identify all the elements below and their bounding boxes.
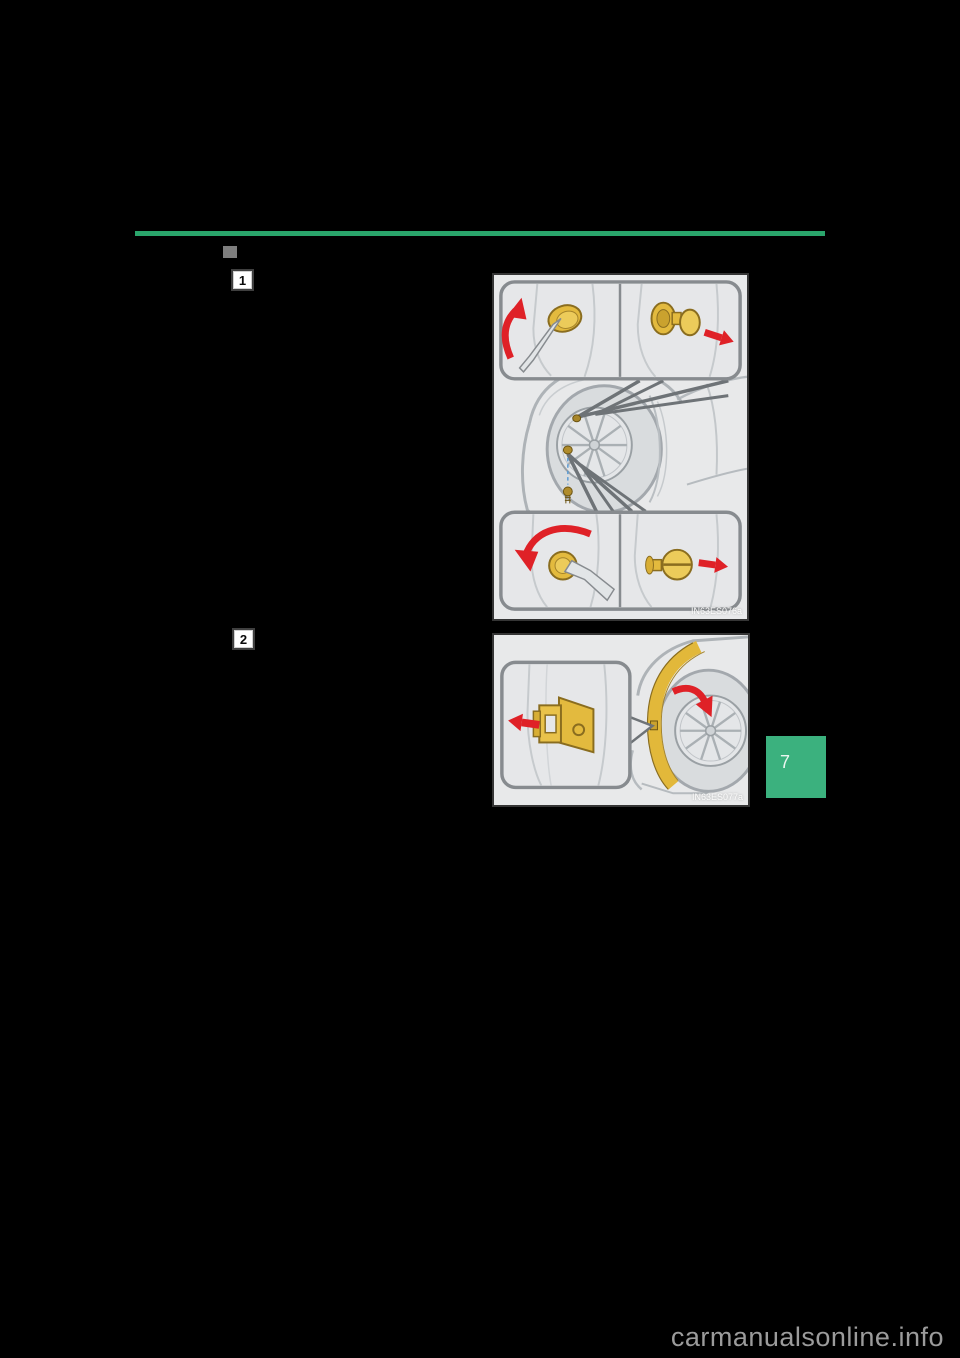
inset-liner-clip — [502, 662, 630, 787]
section-divider-rule — [135, 231, 825, 236]
manual-page: 1 2 — [0, 0, 960, 1358]
clip-removal-illustration — [494, 275, 747, 619]
section-square-icon — [223, 246, 237, 258]
figure-liner-removal: IN63ES077a — [492, 633, 750, 807]
chapter-tab: 7 — [766, 736, 826, 798]
liner-removal-illustration — [494, 635, 748, 805]
step-2-badge: 2 — [232, 628, 255, 650]
step-1-badge: 1 — [231, 269, 254, 291]
figure-code-label: IN63ES077a — [692, 793, 743, 802]
inset-clip-removal — [501, 282, 740, 379]
screw-target — [563, 446, 572, 454]
figure-code-label: IN63ES076a — [691, 607, 742, 616]
figure-clip-removal: IN63ES076a — [492, 273, 749, 621]
inset-screw-removal — [501, 512, 740, 609]
watermark-text: carmanualsonline.info — [671, 1324, 944, 1351]
clip-target — [573, 415, 581, 422]
